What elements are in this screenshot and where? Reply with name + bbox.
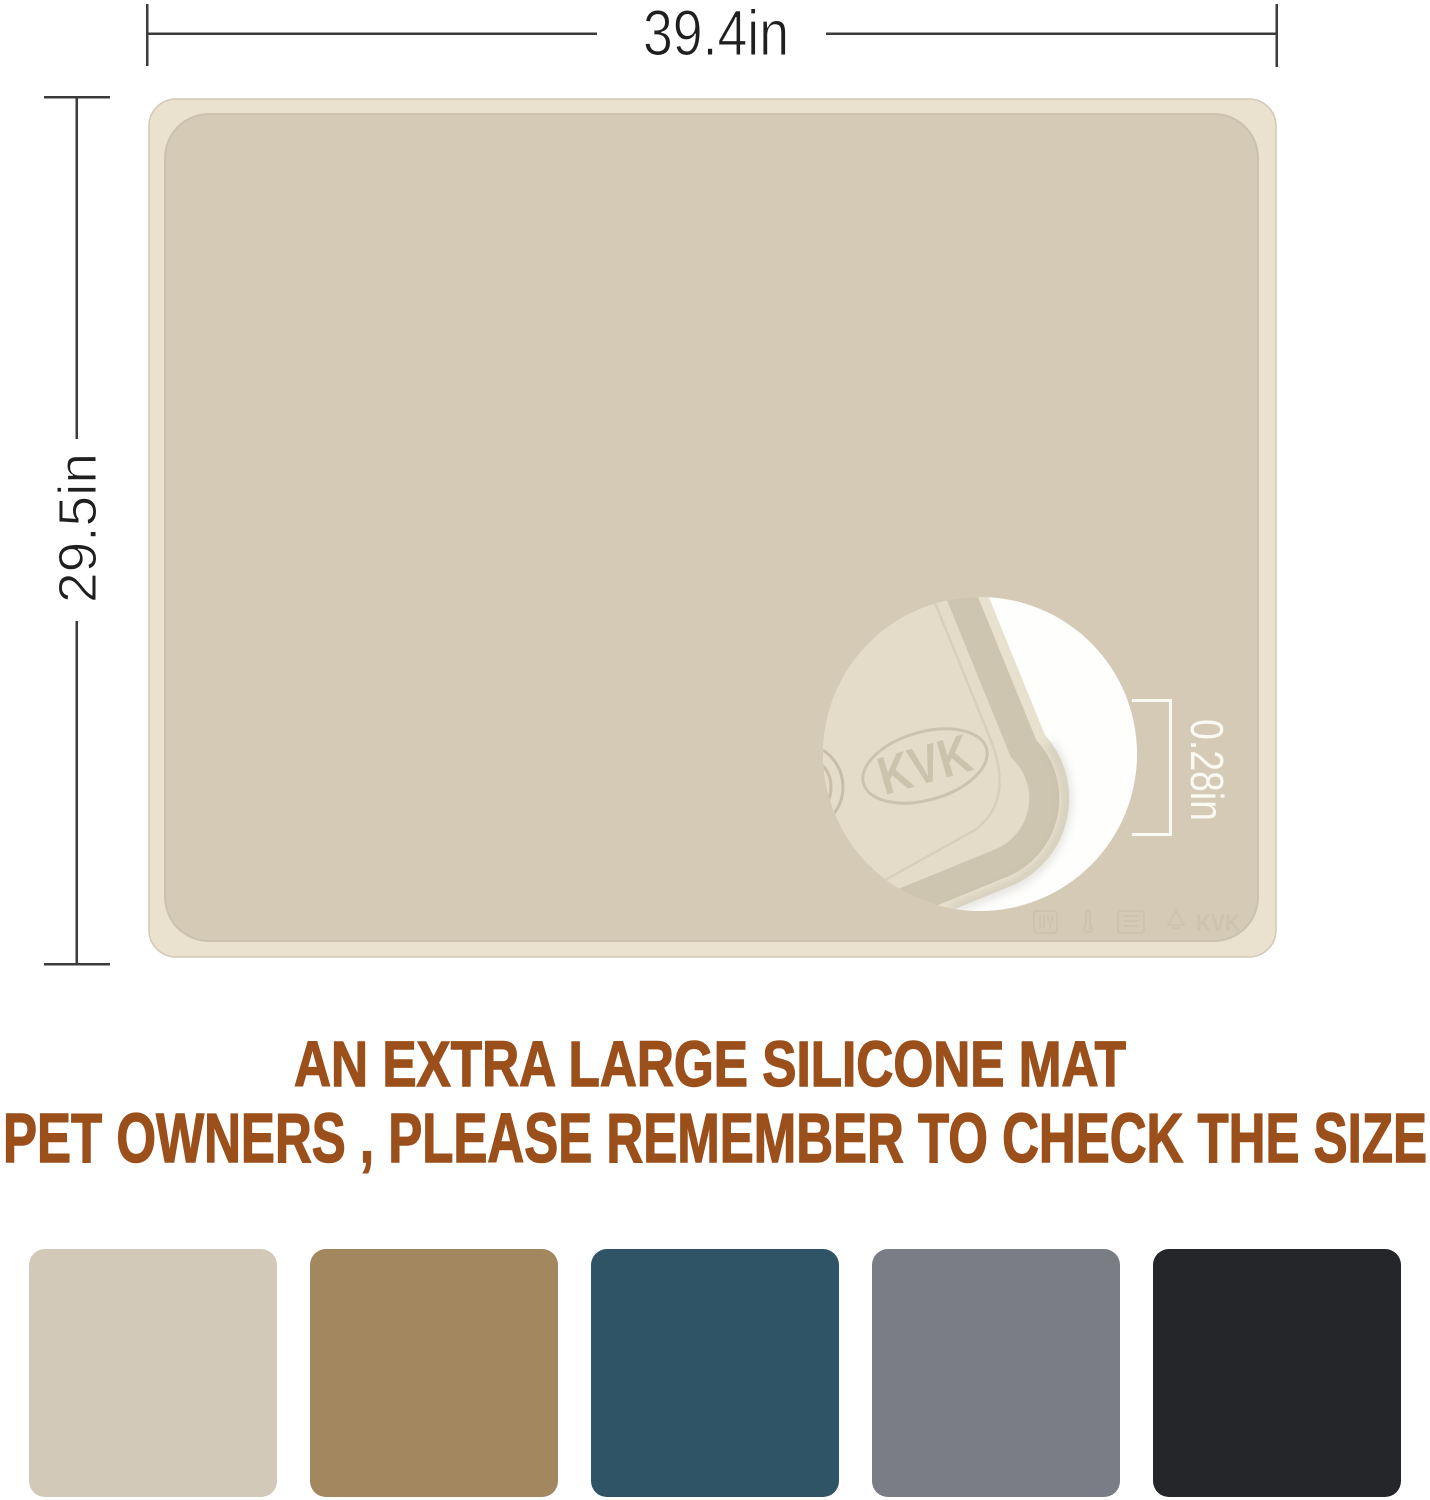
svg-text:0.28in: 0.28in — [1181, 719, 1233, 821]
svg-text:39.4in: 39.4in — [643, 0, 789, 69]
svg-text:29.5in: 29.5in — [48, 453, 108, 603]
svg-text:KVK: KVK — [1196, 910, 1241, 937]
svg-text:AN EXTRA LARGE SILICONE MAT: AN EXTRA LARGE SILICONE MAT — [294, 1028, 1126, 1100]
svg-text:PET OWNERS , PLEASE REMEMBER T: PET OWNERS , PLEASE REMEMBER TO CHECK TH… — [3, 1099, 1427, 1177]
